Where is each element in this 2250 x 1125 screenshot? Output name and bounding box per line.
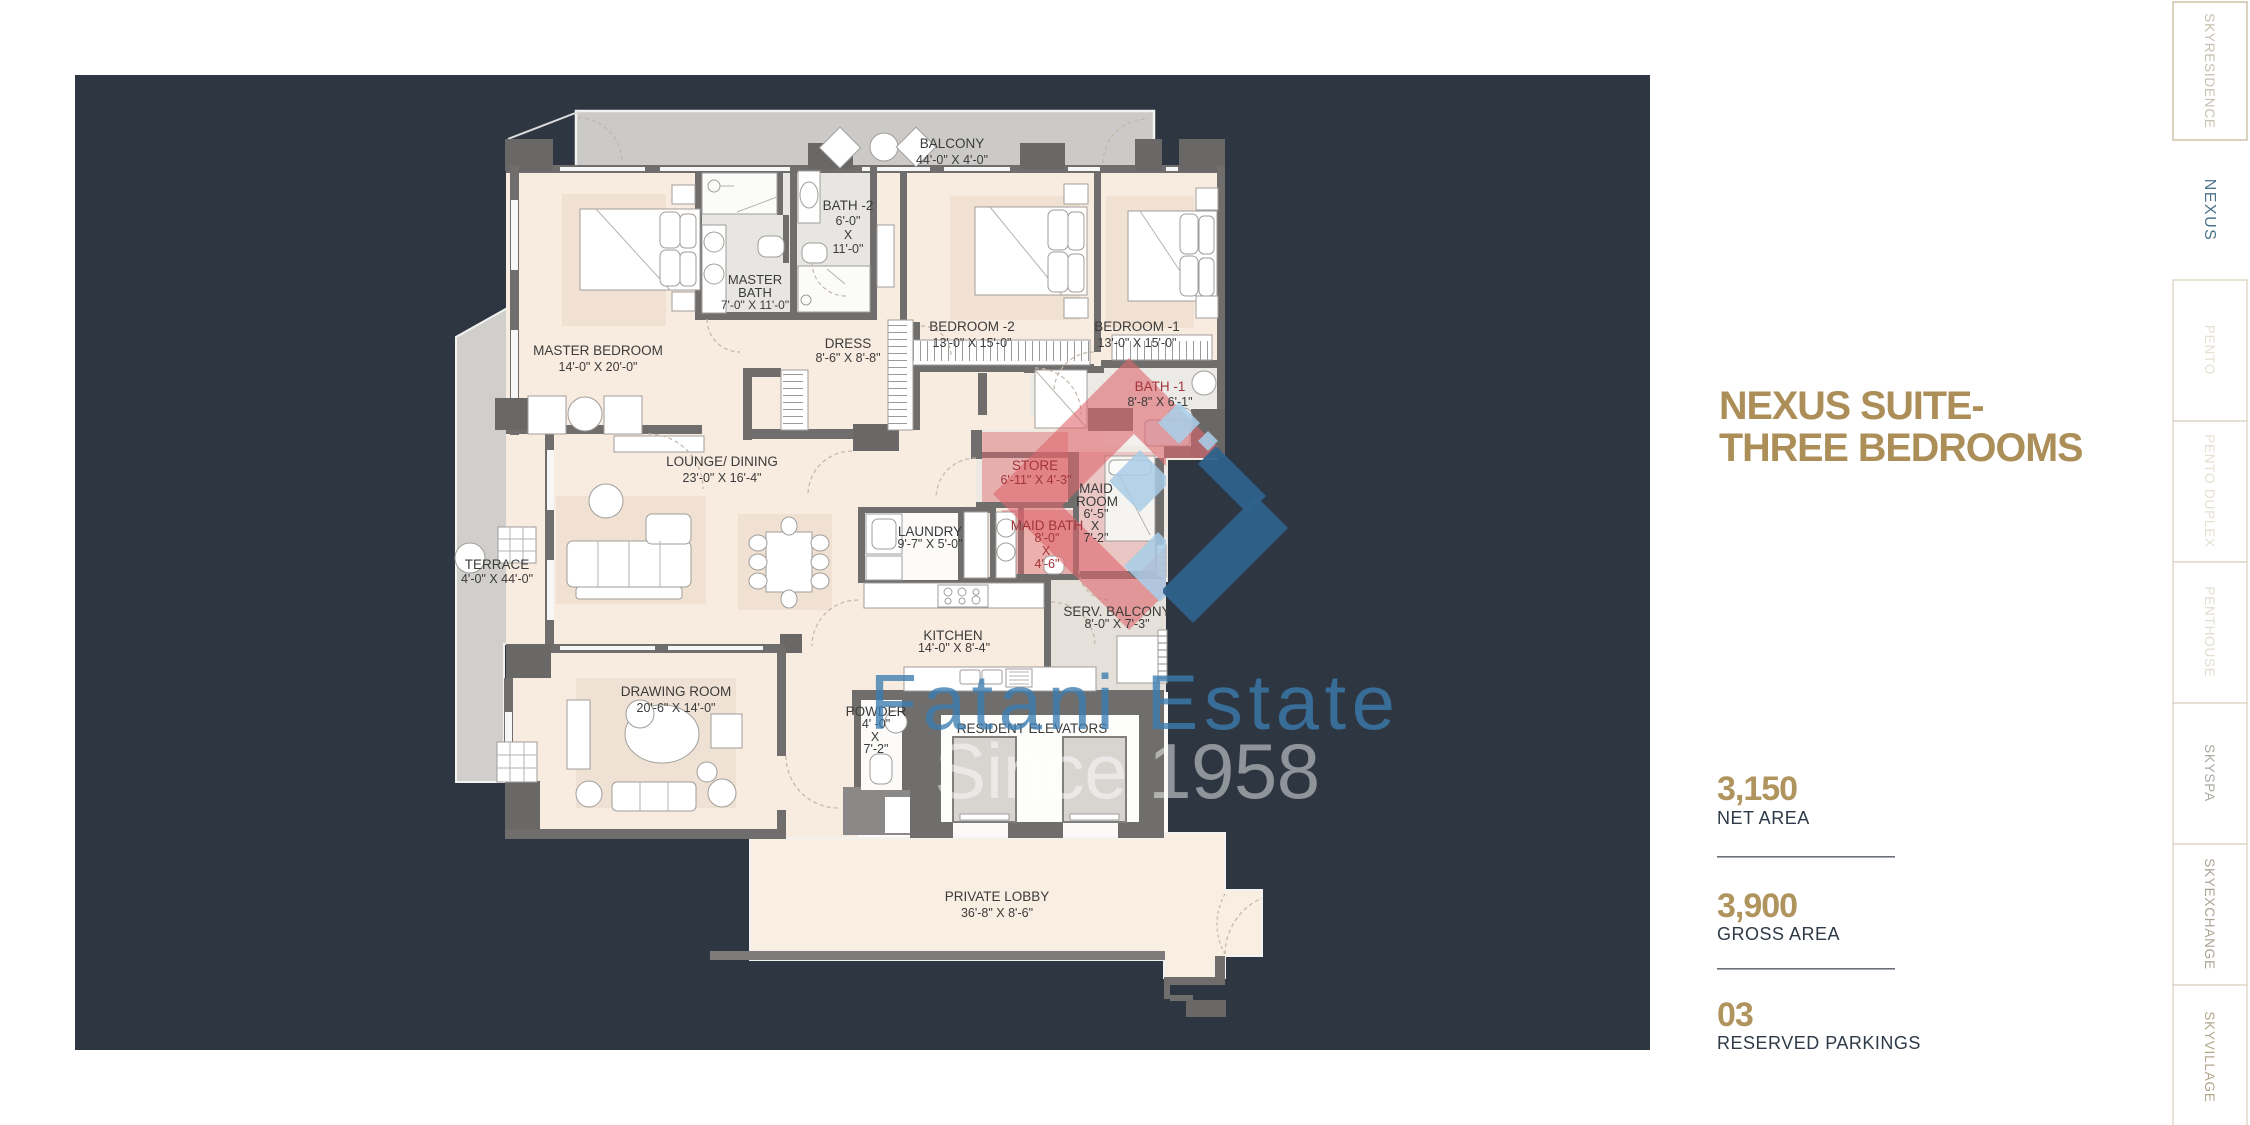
svg-text:Since 1958: Since 1958 — [934, 727, 1319, 815]
svg-text:SKYSPA: SKYSPA — [2202, 744, 2217, 802]
svg-text:MASTER BEDROOM: MASTER BEDROOM — [533, 343, 663, 358]
svg-text:NET AREA: NET AREA — [1717, 808, 1810, 828]
svg-text:4'-6": 4'-6" — [1035, 557, 1060, 571]
svg-text:13'-0" X 15'-0": 13'-0" X 15'-0" — [933, 336, 1012, 350]
svg-text:23'-0" X 16'-4": 23'-0" X 16'-4" — [683, 471, 762, 485]
svg-text:LOUNGE/ DINING: LOUNGE/ DINING — [666, 454, 778, 469]
svg-text:PENTO: PENTO — [2202, 325, 2217, 375]
svg-text:14'-0" X 20'-0": 14'-0" X 20'-0" — [559, 360, 638, 374]
svg-text:7'-2": 7'-2" — [1084, 531, 1109, 545]
svg-text:NEXUS SUITE-: NEXUS SUITE- — [1719, 384, 1984, 428]
svg-text:PENTHOUSE: PENTHOUSE — [2202, 586, 2217, 677]
svg-text:9'-7" X 5'-0": 9'-7" X 5'-0" — [897, 537, 962, 551]
svg-text:PENTO DUPLEX: PENTO DUPLEX — [2202, 434, 2217, 548]
svg-text:BALCONY: BALCONY — [920, 136, 985, 151]
svg-text:SKYVILLAGE: SKYVILLAGE — [2202, 1011, 2217, 1102]
svg-text:X: X — [1042, 544, 1051, 558]
svg-text:SKYEXCHANGE: SKYEXCHANGE — [2202, 858, 2217, 970]
svg-text:6'-11" X 4'-3": 6'-11" X 4'-3" — [1000, 473, 1071, 487]
svg-text:PRIVATE LOBBY: PRIVATE LOBBY — [945, 889, 1050, 904]
svg-text:SKYRESIDENCE: SKYRESIDENCE — [2202, 13, 2217, 128]
svg-text:7'-0" X 11'-0": 7'-0" X 11'-0" — [721, 298, 789, 312]
svg-text:11'-0": 11'-0" — [833, 242, 864, 256]
svg-text:BEDROOM -2: BEDROOM -2 — [929, 319, 1015, 334]
svg-text:20'-6" X 14'-0": 20'-6" X 14'-0" — [637, 701, 716, 715]
svg-text:BATH -1: BATH -1 — [1135, 379, 1186, 394]
svg-text:STORE: STORE — [1012, 458, 1058, 473]
svg-text:6'-0": 6'-0" — [836, 214, 861, 228]
svg-text:36'-8" X 8'-6": 36'-8" X 8'-6" — [961, 906, 1033, 920]
svg-text:DRESS: DRESS — [825, 336, 872, 351]
svg-text:3,150: 3,150 — [1717, 770, 1797, 808]
svg-text:X: X — [844, 228, 853, 242]
svg-text:DRAWING ROOM: DRAWING ROOM — [621, 684, 732, 699]
svg-text:8'-8" X 6'-1": 8'-8" X 6'-1" — [1127, 395, 1192, 409]
svg-text:3,900: 3,900 — [1717, 887, 1797, 925]
svg-text:THREE BEDROOMS: THREE BEDROOMS — [1719, 426, 2082, 470]
svg-text:44'-0" X 4'-0": 44'-0" X 4'-0" — [916, 153, 988, 167]
svg-text:14'-0" X 8'-4": 14'-0" X 8'-4" — [918, 641, 990, 655]
svg-text:8'-0": 8'-0" — [1035, 531, 1060, 545]
svg-text:13'-0" X 15'-0": 13'-0" X 15'-0" — [1098, 336, 1177, 350]
svg-text:03: 03 — [1717, 996, 1753, 1034]
svg-text:BEDROOM -1: BEDROOM -1 — [1094, 319, 1180, 334]
svg-text:TERRACE: TERRACE — [465, 557, 530, 572]
svg-text:8'-6" X 8'-8": 8'-6" X 8'-8" — [815, 351, 880, 365]
svg-text:4'-0" X 44'-0": 4'-0" X 44'-0" — [461, 572, 533, 586]
svg-text:RESERVED PARKINGS: RESERVED PARKINGS — [1717, 1033, 1921, 1053]
svg-text:NEXUS: NEXUS — [2201, 179, 2218, 242]
svg-text:8'-0" X 7'-3": 8'-0" X 7'-3" — [1084, 617, 1149, 631]
svg-text:BATH -2: BATH -2 — [823, 198, 874, 213]
svg-text:GROSS AREA: GROSS AREA — [1717, 924, 1840, 944]
